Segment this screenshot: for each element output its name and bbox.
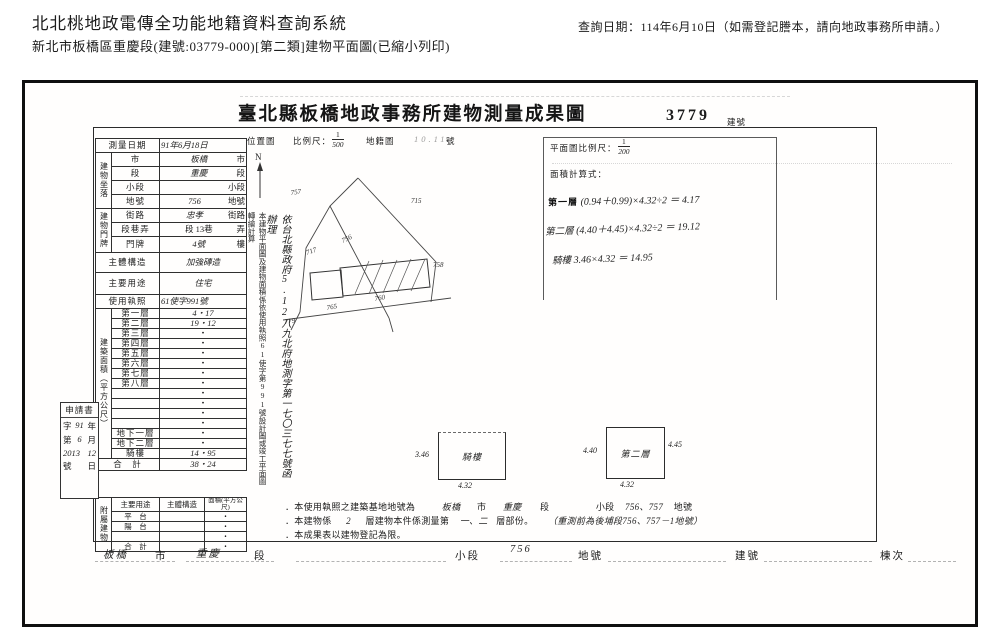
use-label: 主要用途 bbox=[96, 273, 160, 295]
table-row: 地下一層・ bbox=[96, 429, 247, 439]
dimension-value: 4.32 bbox=[620, 480, 634, 489]
application-label: 申請書 bbox=[61, 403, 98, 418]
floor-value: ・ bbox=[160, 339, 247, 349]
note-section: 重慶 bbox=[503, 502, 522, 512]
loc-value: 板橋 bbox=[161, 155, 236, 164]
note-measured-floors: 一、二 bbox=[460, 516, 488, 526]
footer-parcel: 756 bbox=[510, 544, 532, 555]
annex-header: 面積(平方公尺) bbox=[205, 498, 247, 512]
panel-divider bbox=[543, 137, 776, 138]
loc-value: 重慶 bbox=[161, 169, 236, 178]
annex-header: 主體構造 bbox=[160, 498, 205, 512]
application-text: 號 bbox=[63, 460, 72, 472]
north-label: N bbox=[255, 152, 262, 162]
structure-label: 主體構造 bbox=[96, 253, 160, 273]
plan-scale-fraction: 1 200 bbox=[618, 138, 630, 155]
address-group-label: 建物門牌 bbox=[100, 212, 108, 248]
formula-row: 第一層 (0.94＋0.99)×4.32÷2 ＝ 4.17 bbox=[548, 191, 700, 209]
formula-floor-label: 騎樓 bbox=[552, 256, 571, 267]
annex-structure bbox=[160, 532, 205, 542]
license-label: 使用執照 bbox=[96, 295, 160, 309]
parcel-number: 715 bbox=[411, 197, 422, 205]
arcade-plan-label: 騎樓 bbox=[462, 450, 482, 463]
application-text: 年 bbox=[87, 420, 96, 432]
second-floor-plan-rect: 第二層 bbox=[606, 427, 665, 479]
table-row: 地下二層・ bbox=[96, 439, 247, 449]
note-floor-count: 2 bbox=[346, 516, 351, 526]
scan-artifact bbox=[240, 96, 790, 97]
table-row: 段 重慶段 bbox=[96, 167, 247, 181]
addr-suffix: 弄 bbox=[237, 225, 246, 234]
building-number: 3779 bbox=[666, 107, 710, 125]
dimension-value: 3.46 bbox=[415, 450, 429, 459]
floor-label: 第四層 bbox=[112, 339, 160, 349]
footer-underline bbox=[908, 561, 956, 562]
floor-value: ・ bbox=[160, 379, 247, 389]
table-row: 段巷弄 段 13巷弄 bbox=[96, 223, 247, 237]
table-row: 地號 756地號 bbox=[96, 195, 247, 209]
floor-label: 第八層 bbox=[112, 379, 160, 389]
handwritten-vertical-note: 依台北縣政府5.12八九北府地測字第一七〇三七七號函辦理 bbox=[262, 214, 292, 486]
table-row: 建築面積（平方公尺） 第一層 4・17 bbox=[96, 309, 247, 319]
note-line-3: ．本成果表以建物登記為限。 bbox=[285, 528, 406, 541]
floor-label: 騎樓 bbox=[112, 449, 160, 459]
loc-suffix: 市 bbox=[237, 155, 246, 164]
annex-header: 主要用途 bbox=[112, 498, 160, 512]
floor-value: ・ bbox=[160, 439, 247, 449]
addr-suffix: 樓 bbox=[237, 240, 246, 249]
application-text: 第 bbox=[63, 434, 72, 446]
note-text: 層建物本件係測量第 bbox=[365, 516, 449, 526]
floor-value: ・ bbox=[160, 389, 247, 399]
total-label: 合 計 bbox=[96, 459, 160, 471]
annex-table: 附屬建物 主要用途 主體構造 面積(平方公尺) 平 台・ 陽 台・ ・ 合 計・ bbox=[95, 497, 247, 552]
table-row: 主體構造 加強磚造 bbox=[96, 253, 247, 273]
document-subtitle: 新北市板橋區重慶段(建號:03779-000)[第二類]建物平面圖(已縮小列印) bbox=[32, 36, 450, 55]
footer-underline bbox=[186, 561, 274, 562]
annex-structure bbox=[160, 512, 205, 522]
floor-value: ・ bbox=[160, 399, 247, 409]
parcel-number: 760 bbox=[374, 293, 386, 303]
table-row: ・ bbox=[96, 532, 247, 542]
table-row: 第六層・ bbox=[96, 359, 247, 369]
annex-area: ・ bbox=[205, 512, 247, 522]
floor-label: 地下二層 bbox=[112, 439, 160, 449]
table-row: 第三層・ bbox=[96, 329, 247, 339]
loc-label: 段 bbox=[112, 167, 160, 181]
application-year: 91 bbox=[75, 420, 84, 432]
footer-label: 小段 bbox=[455, 548, 480, 563]
annex-area: ・ bbox=[205, 522, 247, 532]
loc-label: 小段 bbox=[112, 181, 160, 195]
application-box: 申請書 字91年 第6月 201312 號日 bbox=[60, 402, 99, 499]
table-row: 小段 小段 bbox=[96, 181, 247, 195]
table-row: 第四層・ bbox=[96, 339, 247, 349]
use-value: 住宅 bbox=[195, 278, 212, 288]
table-row: 第七層・ bbox=[96, 369, 247, 379]
floor-label: 地下一層 bbox=[112, 429, 160, 439]
note-text: 段 bbox=[540, 502, 549, 512]
floor-value: 4・17 bbox=[192, 309, 213, 319]
table-row: ・ bbox=[96, 419, 247, 429]
system-title: 北北桃地政電傳全功能地籍資料查詢系統 bbox=[32, 10, 347, 34]
structure-value: 加強磚造 bbox=[186, 257, 220, 267]
note-text: ．本使用執照之建築基地地號為 bbox=[285, 502, 415, 512]
table-row: 主要用途 住宅 bbox=[96, 273, 247, 295]
annex-structure bbox=[160, 522, 205, 532]
application-month: 6 bbox=[77, 434, 81, 446]
footer-city: 板橋 bbox=[103, 547, 128, 562]
loc-value: 756 bbox=[161, 197, 228, 206]
query-system-page: 北北桃地政電傳全功能地籍資料查詢系統 新北市板橋區重慶段(建號:03779-00… bbox=[0, 0, 1000, 640]
annex-label bbox=[112, 532, 160, 542]
floor-value: ・ bbox=[160, 349, 247, 359]
dimension-value: 4.40 bbox=[583, 446, 597, 455]
formula-expression: (0.94＋0.99)×4.32÷2 ＝ 4.17 bbox=[580, 195, 699, 208]
table-row: 第二層19・12 bbox=[96, 319, 247, 329]
floor-value: ・ bbox=[160, 409, 247, 419]
second-floor-plan-label: 第二層 bbox=[620, 447, 650, 460]
area-group-label: 建築面積（平方公尺） bbox=[100, 338, 108, 428]
scale-denominator: 200 bbox=[618, 147, 630, 156]
floor-label bbox=[112, 409, 160, 419]
footer-underline bbox=[608, 561, 726, 562]
footer-section: 重慶 bbox=[196, 546, 221, 561]
floor-label: 第七層 bbox=[112, 369, 160, 379]
note-text: 市 bbox=[477, 502, 486, 512]
note-line-1: ．本使用執照之建築基地地號為 板橋 市 重慶 段 小段 756、757 地號 bbox=[285, 500, 692, 513]
document-title: 臺北縣板橋地政事務所建物測量成果圖 bbox=[238, 100, 587, 126]
plan-scale-label: 平面圖比例尺： bbox=[550, 142, 617, 154]
table-row: 附屬建物 主要用途 主體構造 面積(平方公尺) bbox=[96, 498, 247, 512]
survey-table: 測量日期 91年6月18日 建物坐落 市 板橋市 段 重慶段 小段 小段 地號 … bbox=[95, 138, 247, 471]
floor-value: ・ bbox=[160, 329, 247, 339]
note-parcel-numbers: 756、757 bbox=[625, 502, 663, 512]
note-text: ．本建物係 bbox=[285, 516, 332, 526]
table-row: 騎樓14・95 bbox=[96, 449, 247, 459]
parcel-number: 758 bbox=[433, 261, 444, 269]
scale-numerator: 1 bbox=[332, 131, 344, 140]
table-row: 建物坐落 市 板橋市 bbox=[96, 153, 247, 167]
floor-label bbox=[112, 419, 160, 429]
floor-label: 第五層 bbox=[112, 349, 160, 359]
loc-suffix: 小段 bbox=[228, 183, 245, 192]
dimension-value: 4.32 bbox=[458, 481, 472, 490]
total-value: 38・24 bbox=[190, 459, 216, 469]
table-row: 建物門牌 街路 忠孝街路 bbox=[96, 209, 247, 223]
arcade-plan-rect: 騎樓 bbox=[438, 432, 506, 480]
table-row: ・ bbox=[96, 409, 247, 419]
loc-label: 地號 bbox=[112, 195, 160, 209]
addr-value: 4號 bbox=[161, 240, 236, 249]
table-row: 第八層・ bbox=[96, 379, 247, 389]
addr-label: 門牌 bbox=[112, 237, 160, 253]
note-line-2: ．本建物係 2 層建物本件係測量第 一、二 層部份。 （重測前為後埔段756、7… bbox=[285, 514, 702, 527]
addr-value: 忠孝 bbox=[161, 211, 228, 220]
survey-date-label: 測量日期 bbox=[96, 139, 160, 153]
formula-floor-label: 第一層 bbox=[548, 197, 578, 208]
location-map-label: 位置圖 bbox=[247, 135, 276, 147]
footer-label: 地號 bbox=[578, 548, 603, 563]
footer-underline bbox=[296, 561, 446, 562]
annex-area: ・ bbox=[205, 532, 247, 542]
parcel-number: 757 bbox=[290, 188, 302, 197]
query-date: 查詢日期：114年6月10日（如需登記謄本，請向地政事務所申請。） bbox=[578, 18, 948, 35]
table-row: 測量日期 91年6月18日 bbox=[96, 139, 247, 153]
annex-label: 平 台 bbox=[112, 512, 160, 522]
floor-value: 14・95 bbox=[190, 449, 216, 459]
annex-label: 陽 台 bbox=[112, 522, 160, 532]
footer-label: 建號 bbox=[735, 548, 760, 563]
floor-value: ・ bbox=[160, 429, 247, 439]
floor-label: 第六層 bbox=[112, 359, 160, 369]
floor-label: 第一層 bbox=[112, 309, 160, 319]
table-row: ・ bbox=[96, 389, 247, 399]
parcel-number: 756 bbox=[340, 233, 353, 245]
floor-label: 第三層 bbox=[112, 329, 160, 339]
addr-suffix: 街路 bbox=[228, 211, 245, 220]
addr-value: 段 13巷 bbox=[161, 225, 236, 234]
table-row: ・ bbox=[96, 399, 247, 409]
dimension-value: 4.45 bbox=[668, 440, 682, 449]
survey-date-value: 91年6月18日 bbox=[161, 140, 208, 150]
note-city: 板橋 bbox=[442, 502, 461, 512]
footer-underline bbox=[764, 561, 872, 562]
floor-label: 第二層 bbox=[112, 319, 160, 329]
note-text: 小段 bbox=[596, 502, 615, 512]
floor-label bbox=[112, 399, 160, 409]
subject-building-outline bbox=[340, 259, 430, 296]
formula-floor-label: 第二層 bbox=[545, 227, 574, 238]
addr-label: 街路 bbox=[112, 209, 160, 223]
location-sketch: 757 715 756 717 758 765 760 779 bbox=[283, 140, 458, 340]
addr-label: 段巷弄 bbox=[112, 223, 160, 237]
table-row: 陽 台・ bbox=[96, 522, 247, 532]
panel-divider bbox=[543, 137, 544, 300]
application-text: 字 bbox=[63, 420, 72, 432]
note-text: 地號 bbox=[674, 502, 693, 512]
scale-numerator: 1 bbox=[618, 138, 630, 147]
note-old-parcel: （重測前為後埔段756、757－1地號） bbox=[548, 516, 703, 526]
footer-underline bbox=[95, 561, 175, 562]
floor-value: ・ bbox=[160, 369, 247, 379]
table-row: 第五層・ bbox=[96, 349, 247, 359]
floor-value: ・ bbox=[160, 419, 247, 429]
footer-underline bbox=[500, 561, 572, 562]
application-text: 日 bbox=[87, 460, 96, 472]
floor-value: ・ bbox=[160, 359, 247, 369]
floor-label bbox=[112, 389, 160, 399]
license-value: 61使字991號 bbox=[161, 296, 208, 306]
application-text: 月 bbox=[87, 434, 96, 446]
table-row: 合 計 38・24 bbox=[96, 459, 247, 471]
note-text: 層部份。 bbox=[496, 516, 533, 526]
panel-divider bbox=[776, 137, 777, 300]
footer-label: 棟次 bbox=[880, 548, 905, 563]
location-group-label: 建物坐落 bbox=[100, 162, 108, 198]
parcel-number: 765 bbox=[326, 302, 338, 312]
application-day: 12 bbox=[88, 448, 97, 458]
table-row: 使用執照 61使字991號 bbox=[96, 295, 247, 309]
floor-value: 19・12 bbox=[190, 319, 216, 329]
loc-label: 市 bbox=[112, 153, 160, 167]
loc-suffix: 段 bbox=[237, 169, 246, 178]
table-row: 平 台・ bbox=[96, 512, 247, 522]
loc-suffix: 地號 bbox=[228, 197, 245, 206]
table-row: 門牌 4號樓 bbox=[96, 237, 247, 253]
north-arrow: N bbox=[252, 150, 268, 200]
area-formula-label: 面積計算式： bbox=[550, 168, 607, 180]
annex-group-label: 附屬建物 bbox=[100, 506, 108, 542]
application-number: 2013 bbox=[63, 448, 80, 458]
